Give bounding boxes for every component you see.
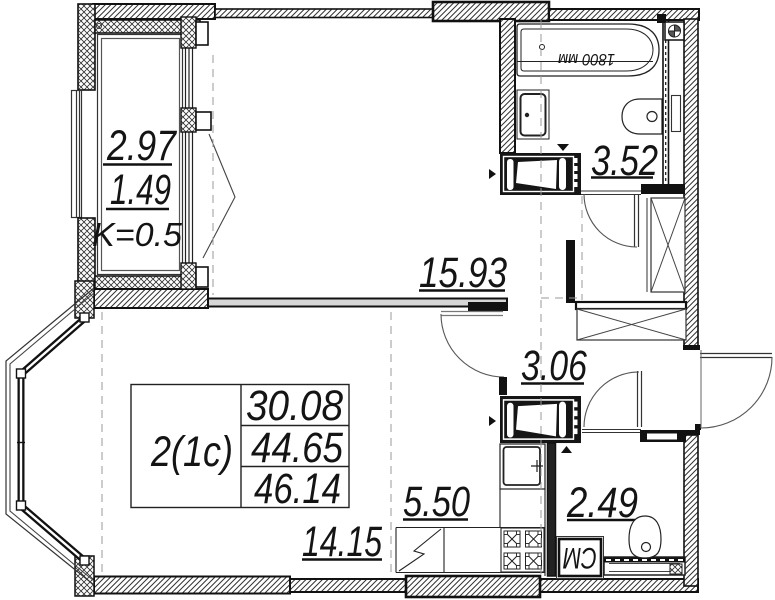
svg-text:46.14: 46.14: [254, 465, 341, 513]
svg-text:СМ: СМ: [563, 541, 597, 574]
svg-text:K=0.5: K=0.5: [92, 216, 183, 253]
svg-text:1800 мм: 1800 мм: [558, 50, 615, 69]
svg-text:1.49: 1.49: [110, 166, 171, 214]
svg-text:2.97: 2.97: [106, 122, 178, 170]
svg-text:30.08: 30.08: [246, 382, 343, 430]
svg-text:2(1c): 2(1c): [150, 428, 233, 476]
